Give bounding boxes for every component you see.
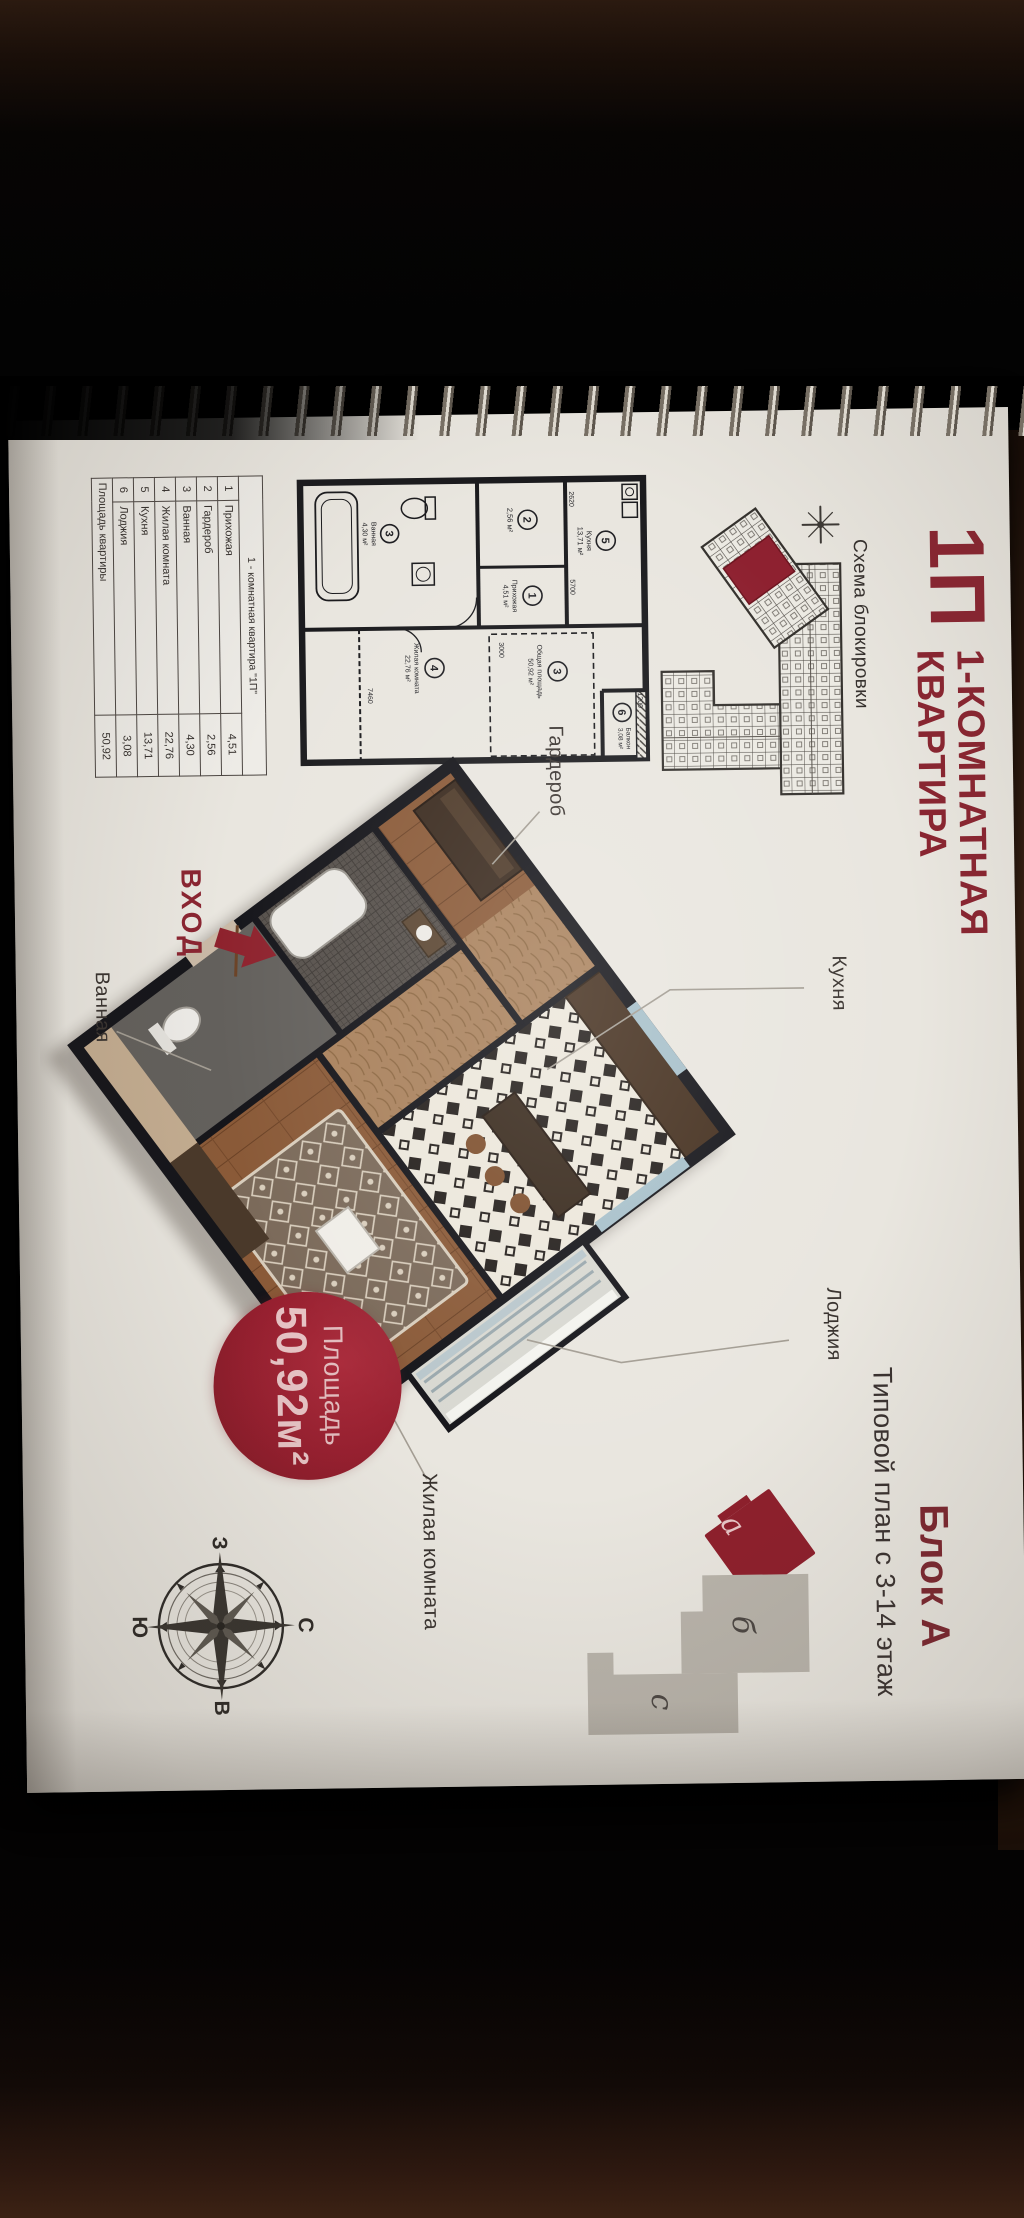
label-kitchen: Кухня (827, 955, 851, 1011)
svg-text:3: 3 (551, 668, 563, 674)
svg-text:1200: 1200 (636, 692, 643, 708)
schematic-room-kitchen: 5 Кухня 13,71 м² 2620 5700 (567, 491, 616, 595)
schematic-total-area: 3 Общая площадь 50,92 м² 3000 (497, 641, 567, 699)
page-content: 1П 1-КОМНАТНАЯ КВАРТИРА Схема блокировки (8, 407, 1024, 1793)
svg-text:6: 6 (615, 709, 627, 715)
label-loggia: Лоджия (821, 1287, 845, 1361)
title-line-1: 1-КОМНАТНАЯ (949, 649, 993, 937)
svg-text:3000: 3000 (497, 642, 504, 658)
svg-text:Кухня: Кухня (585, 531, 594, 551)
svg-text:Ванная: Ванная (369, 522, 376, 546)
schematic-floor-plan: 5 Кухня 13,71 м² 2620 5700 6 Балкон 3,08… (279, 460, 661, 783)
compass-rose: С В Ю З (130, 1533, 317, 1720)
svg-text:Прихожая: Прихожая (510, 580, 517, 613)
svg-text:2: 2 (520, 517, 532, 523)
svg-text:7460: 7460 (366, 688, 373, 704)
badge-value: 50,92м² (265, 1305, 316, 1466)
badge-label: Площадь (317, 1325, 350, 1446)
label-wardrobe: Гардероб (543, 725, 567, 817)
schematic-room-hall: 1 Прихожая 4,51 м² (501, 579, 542, 612)
block-b-letter: б (725, 1615, 760, 1634)
compass-north: С (294, 1617, 316, 1632)
schematic-room-living: 4 Жилая комната 22,76 м² 7460 (365, 643, 444, 704)
svg-text:Общая площадь: Общая площадь (535, 644, 544, 699)
table-total-row: Площадь квартиры50,92 (91, 478, 116, 777)
brochure-page: 1П 1-КОМНАТНАЯ КВАРТИРА Схема блокировки (8, 407, 1024, 1793)
blocks-layout-scheme: а б с (573, 1462, 825, 1757)
binding-fade (0, 376, 420, 440)
label-bathroom: Ванная (90, 972, 114, 1043)
svg-text:5: 5 (599, 538, 611, 544)
compass-east: В (210, 1700, 233, 1715)
svg-text:4,30 м²: 4,30 м² (361, 523, 368, 546)
schematic-room-wardrobe: 2 2,56 м² (505, 507, 537, 532)
table-row: 3Ванная4,30 (175, 477, 200, 776)
entrance-arrow-icon (207, 905, 290, 978)
compass-west: З (208, 1536, 231, 1549)
render-3d-plan (36, 735, 781, 1519)
apartment-3d (71, 756, 774, 1471)
table-row: 4Жилая комната22,76 (154, 477, 179, 776)
apartment-code: 1П (920, 525, 996, 629)
svg-text:2620: 2620 (567, 491, 574, 507)
table-row: 6Лоджия3,08 (112, 478, 137, 777)
schematic-room-bathroom: 3 Ванная 4,30 м² (360, 522, 398, 547)
svg-text:50,92 м²: 50,92 м² (526, 658, 533, 685)
table-header: 1 - комнатная квартира "1П" (238, 476, 266, 775)
svg-text:2,56 м²: 2,56 м² (505, 508, 514, 533)
svg-text:13,71 м²: 13,71 м² (576, 527, 585, 556)
svg-text:1: 1 (525, 593, 537, 599)
svg-text:22,76 м²: 22,76 м² (403, 655, 410, 682)
svg-text:Жилая комната: Жилая комната (412, 643, 420, 694)
svg-text:3: 3 (383, 531, 395, 537)
table-row: 2Гардероб2,56 (196, 477, 221, 776)
room-area-table: 1 - комнатная квартира "1П" 1Прихожая4,5… (91, 475, 267, 777)
floor-range-note: Типовой план с 3-14 этаж (866, 1367, 902, 1697)
apartment-type-title: 1-КОМНАТНАЯ КВАРТИРА (909, 649, 994, 938)
block-title: Блок А (910, 1504, 957, 1649)
table-row: 5Кухня13,71 (133, 477, 158, 776)
svg-text:4: 4 (427, 665, 439, 672)
table-row: 1Прихожая4,51 (217, 476, 242, 775)
entrance-label: ВХОД (174, 868, 207, 959)
svg-text:4,51 м²: 4,51 м² (501, 585, 508, 608)
title-line-2: КВАРТИРА (909, 649, 953, 937)
svg-text:5700: 5700 (568, 579, 575, 595)
compass-south: Ю (130, 1616, 151, 1638)
label-living-room: Жилая комната (417, 1473, 443, 1630)
block-c-letter: с (644, 1693, 679, 1710)
page-title: 1П 1-КОМНАТНАЯ КВАРТИРА (907, 525, 999, 937)
